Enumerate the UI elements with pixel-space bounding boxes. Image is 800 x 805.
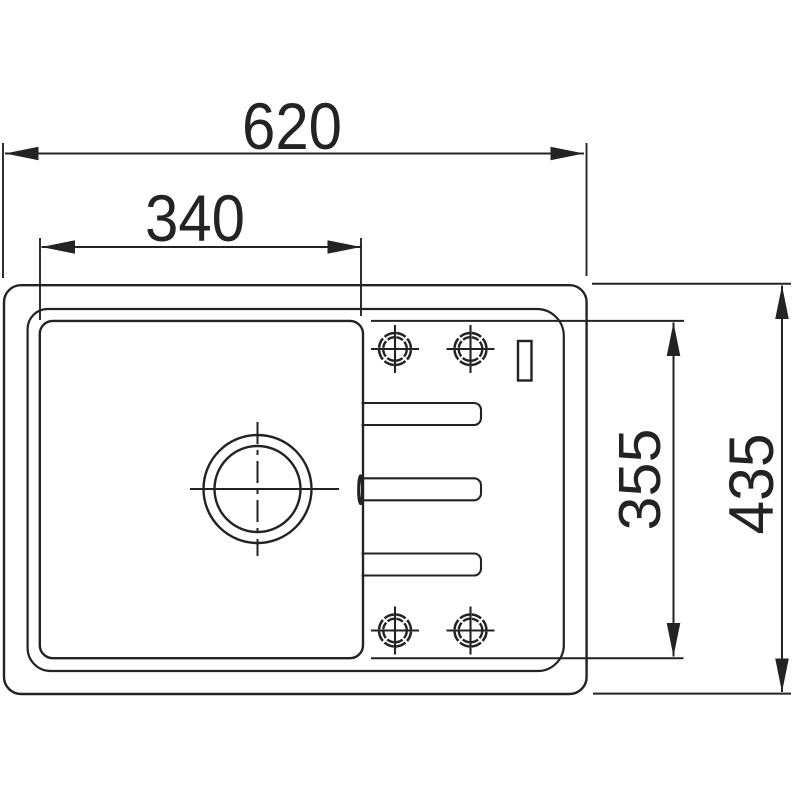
svg-text:340: 340 — [145, 181, 245, 255]
svg-text:435: 435 — [717, 434, 787, 535]
svg-text:620: 620 — [242, 89, 342, 163]
svg-text:355: 355 — [607, 429, 673, 531]
